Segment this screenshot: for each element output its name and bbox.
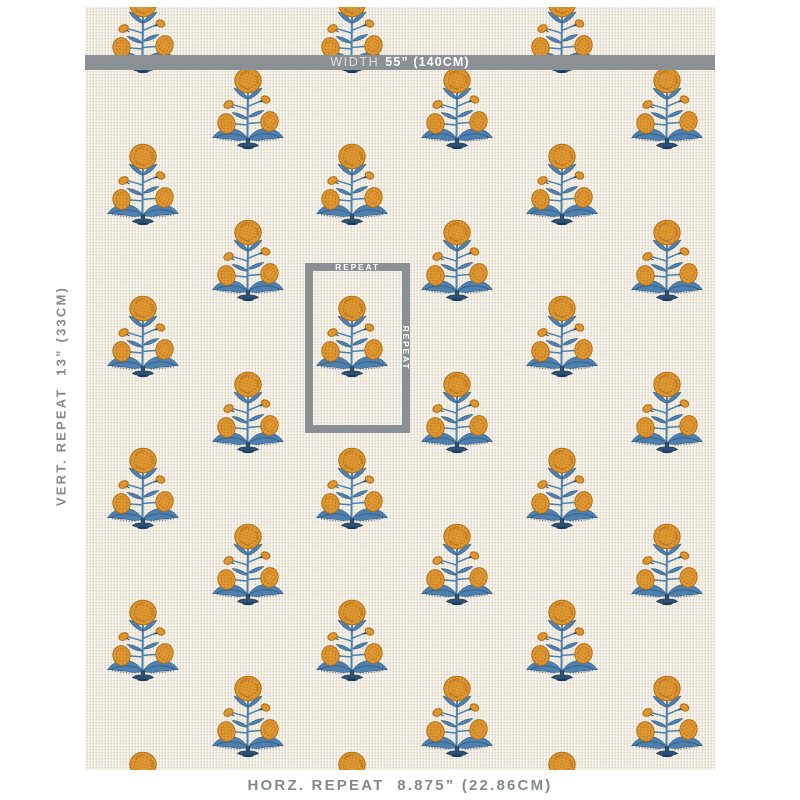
flower-motif — [213, 220, 284, 301]
repeat-box: REPEAT REPEAT — [305, 263, 410, 433]
horizontal-repeat-label: HORZ. REPEAT 8.875” (22.86CM) — [0, 777, 800, 794]
flower-motif — [108, 448, 179, 529]
flower-motif — [213, 524, 284, 605]
flower-motif — [213, 372, 284, 453]
fabric-swatch: WIDTH 55” (140CM) REPEAT REPEAT — [85, 7, 715, 770]
flower-motif — [527, 448, 598, 529]
flower-motif — [632, 676, 703, 757]
flower-motif — [108, 600, 179, 681]
fabric-swatch-product-image: WIDTH 55” (140CM) REPEAT REPEAT VERT. RE… — [0, 0, 800, 800]
flower-motif — [632, 372, 703, 453]
flower-motif — [527, 752, 598, 770]
flower-motif — [527, 600, 598, 681]
flower-motif — [213, 68, 284, 149]
flower-motif — [422, 524, 493, 605]
flower-motif — [213, 676, 284, 757]
flower-motif — [317, 752, 388, 770]
flower-motif — [108, 752, 179, 770]
flower-motif — [422, 68, 493, 149]
flower-motif — [317, 448, 388, 529]
width-label: WIDTH — [330, 55, 379, 70]
vertical-repeat-label: VERT. REPEAT 13” (33CM) — [54, 286, 69, 506]
width-measure-bar: WIDTH 55” (140CM) — [85, 55, 715, 70]
repeat-box-side-label: REPEAT — [401, 326, 411, 371]
flower-motif — [422, 676, 493, 757]
flower-motif — [422, 372, 493, 453]
flower-motif — [632, 524, 703, 605]
flower-motif — [317, 144, 388, 225]
flower-motif — [108, 144, 179, 225]
flower-motif — [422, 220, 493, 301]
flower-motif — [527, 296, 598, 377]
flower-motif — [632, 68, 703, 149]
repeat-box-top-label: REPEAT — [305, 263, 410, 271]
flower-motif — [632, 220, 703, 301]
flower-motif — [527, 144, 598, 225]
width-value: 55” (140CM) — [385, 55, 469, 70]
flower-motif — [317, 600, 388, 681]
flower-motif — [108, 296, 179, 377]
